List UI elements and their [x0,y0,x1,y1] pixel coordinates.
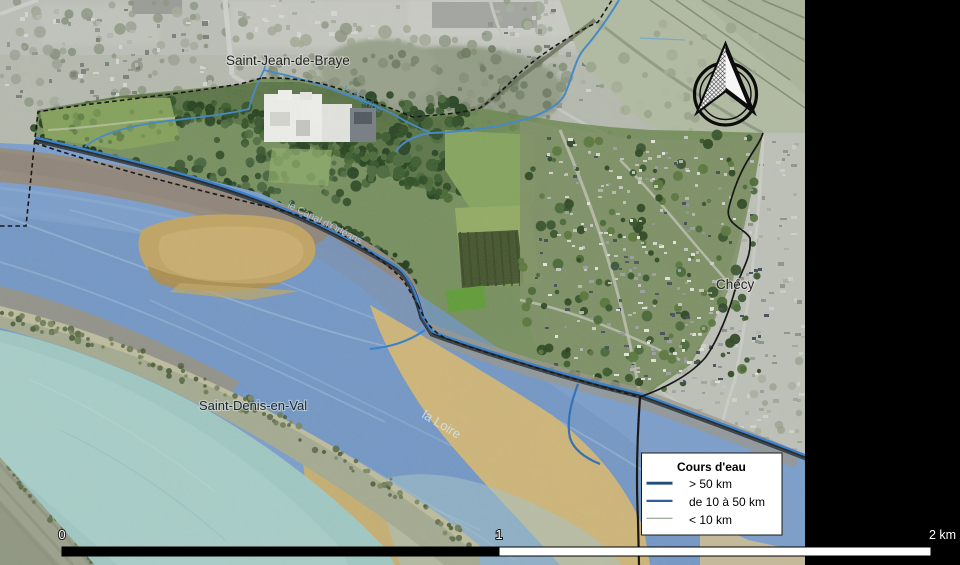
svg-text:Saint-Jean-de-Braye: Saint-Jean-de-Braye [226,53,350,68]
svg-text:2 km: 2 km [929,528,956,542]
svg-text:> 50 km: > 50 km [689,477,732,491]
svg-text:Chécy: Chécy [716,277,755,292]
svg-text:0: 0 [58,527,65,542]
svg-text:Cours d'eau: Cours d'eau [677,460,746,474]
svg-text:1: 1 [495,527,502,542]
svg-text:de 10 à 50 km: de 10 à 50 km [689,495,765,509]
svg-text:< 10 km: < 10 km [689,513,732,527]
svg-text:Saint-Denis-en-Val: Saint-Denis-en-Val [199,398,307,413]
